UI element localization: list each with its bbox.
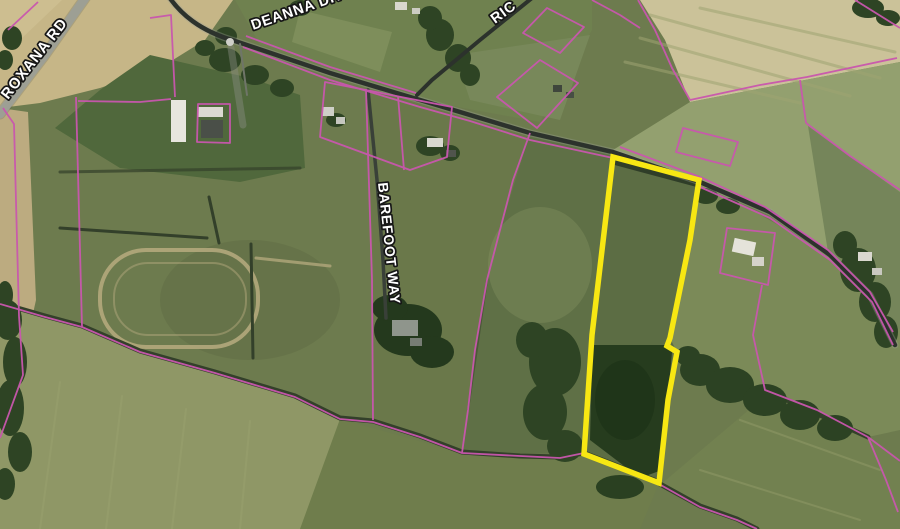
map-canvas[interactable]: ROXANA RD DEANNA DR RIC BAREFOOT WAY: [0, 0, 900, 529]
aerial-imagery: ROXANA RD DEANNA DR RIC BAREFOOT WAY: [0, 0, 900, 529]
